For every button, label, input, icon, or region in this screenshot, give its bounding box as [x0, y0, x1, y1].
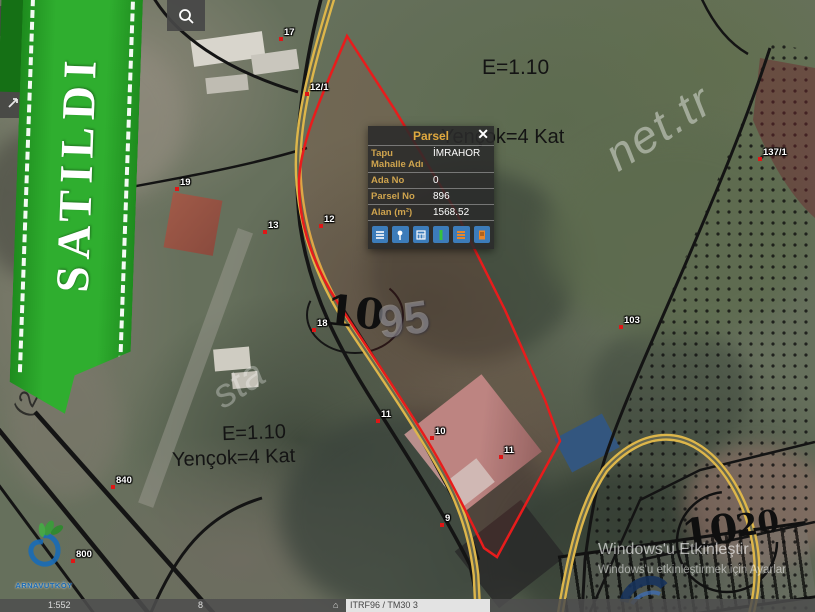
- menu-icon: [374, 229, 386, 241]
- field-value: İMRAHOR: [430, 146, 494, 173]
- municipality-logo: ARNAVUTKÖY: [2, 518, 86, 604]
- field-value: 896: [430, 189, 494, 205]
- parcel-marker: 12/1: [310, 82, 329, 93]
- parcel-number-large: 20: [734, 503, 782, 545]
- close-icon[interactable]: ✕: [474, 126, 492, 142]
- zoning-emsal-bottom: E=1.10: [222, 421, 287, 446]
- field-value: 0: [430, 173, 494, 189]
- measure-icon: [435, 229, 447, 241]
- popup-title: Parsel: [413, 129, 449, 143]
- zoning-emsal-top: E=1.10: [482, 56, 549, 80]
- field-label: Parsel No: [368, 189, 430, 205]
- marker-dot: [175, 187, 179, 191]
- map-viewport[interactable]: E=1.10 Yençok=4 Kat E=1.10 Yençok=4 Kat …: [0, 0, 815, 612]
- parcel-marker: 17: [284, 27, 295, 38]
- field-label: Tapu Mahalle Adı: [368, 146, 430, 173]
- marker-dot: [279, 37, 283, 41]
- marker-dot: [376, 419, 380, 423]
- marker-dot: [430, 436, 434, 440]
- marker-dot: [619, 325, 623, 329]
- building-roof-red: [164, 192, 223, 256]
- ghost-number: 95: [374, 289, 432, 350]
- marker-dot: [312, 328, 316, 332]
- parcel-marker: 840: [116, 475, 132, 486]
- measure-button[interactable]: [433, 226, 449, 243]
- search-button[interactable]: [167, 0, 205, 31]
- windows-activation-subtitle: Windows'u etkinleştirmek için Ayarlar: [598, 564, 786, 576]
- field-value: 1568.52: [430, 205, 494, 221]
- building-icon: [415, 229, 427, 241]
- document-button[interactable]: [474, 226, 490, 243]
- table-row: Alan (m²) 1568.52: [368, 205, 494, 221]
- list-button[interactable]: [453, 226, 469, 243]
- marker-dot: [319, 224, 323, 228]
- menu-button[interactable]: [372, 226, 388, 243]
- parcel-marker: 9: [445, 513, 450, 524]
- home-icon[interactable]: ⌂: [333, 600, 338, 610]
- field-label: Alan (m²): [368, 205, 430, 221]
- building-roof: [205, 74, 248, 94]
- sold-ribbon-label: SATILDI: [46, 53, 108, 294]
- deed-button[interactable]: [413, 226, 429, 243]
- sold-ribbon: SATILDI: [9, 0, 144, 416]
- marker-dot: [111, 485, 115, 489]
- map-scale: 1:552: [48, 600, 71, 610]
- zoning-height-bottom: Yençok=4 Kat: [172, 445, 296, 472]
- marker-dot: [440, 523, 444, 527]
- municipality-name: ARNAVUTKÖY: [2, 581, 86, 590]
- municipality-logo-icon: [13, 518, 75, 576]
- pin-button[interactable]: [392, 226, 408, 243]
- zoom-level: 8: [198, 600, 203, 610]
- crs-selector[interactable]: ITRF96 / TM30 3: [346, 599, 490, 612]
- table-row: Ada No 0: [368, 173, 494, 189]
- parcel-marker: 11: [381, 409, 391, 420]
- ribbon-dashed-border: [118, 0, 135, 376]
- parcel-marker: 19: [180, 177, 191, 188]
- parcel-marker: 18: [317, 318, 328, 329]
- arrow-icon: [6, 96, 20, 110]
- parcel-marker: 10: [435, 426, 446, 437]
- table-row: Tapu Mahalle Adı İMRAHOR: [368, 146, 494, 173]
- parcel-marker: 137/1: [763, 147, 787, 158]
- status-bar: 1:552 8 ⌂ ITRF96 / TM30 3: [0, 599, 815, 612]
- table-row: Parsel No 896: [368, 189, 494, 205]
- parcel-marker: 103: [624, 315, 640, 326]
- marker-dot: [263, 230, 267, 234]
- marker-dot: [499, 455, 503, 459]
- parcel-marker: 12: [324, 214, 335, 225]
- list-icon: [455, 229, 467, 241]
- document-icon: [476, 229, 488, 241]
- windows-activation-title: Windows'u Etkinleştir: [598, 541, 749, 559]
- terrain-light: [545, 130, 815, 340]
- pin-icon: [394, 229, 406, 241]
- marker-dot: [305, 92, 309, 96]
- parcel-info-popup: Parsel ✕ Tapu Mahalle Adı İMRAHOR Ada No…: [368, 126, 494, 249]
- marker-dot: [758, 157, 762, 161]
- search-icon: [177, 7, 195, 25]
- field-label: Ada No: [368, 173, 430, 189]
- parcel-marker: 11: [504, 445, 514, 456]
- parcel-marker: 13: [268, 220, 279, 231]
